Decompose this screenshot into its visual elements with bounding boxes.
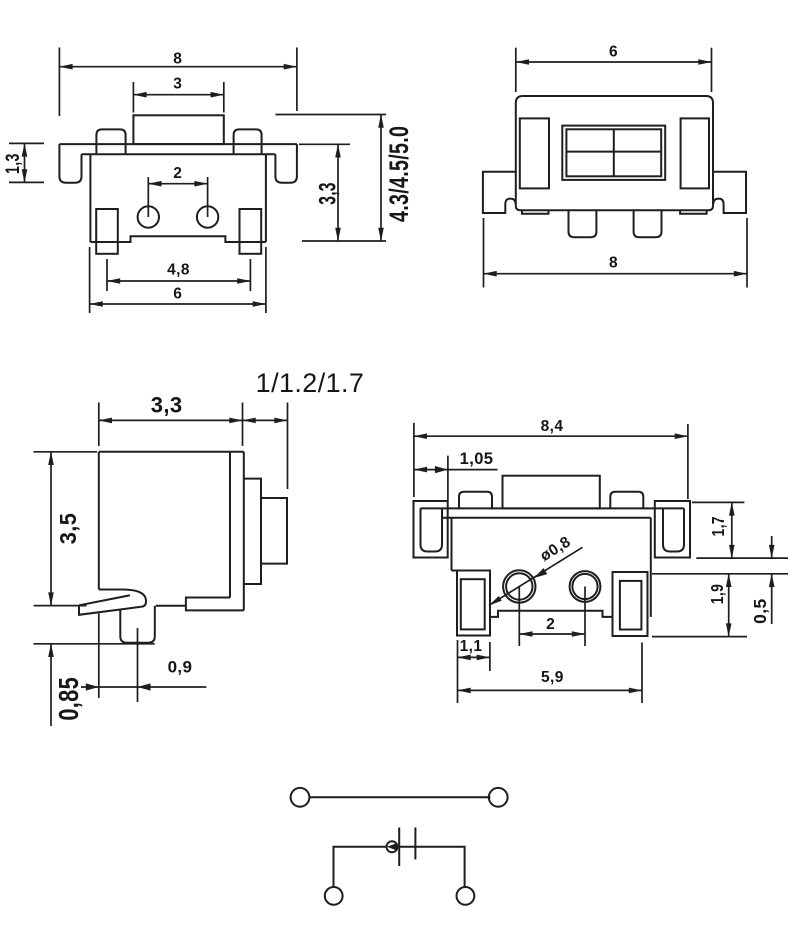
svg-text:2: 2 <box>546 616 555 633</box>
svg-text:4,8: 4,8 <box>167 262 190 279</box>
svg-text:2: 2 <box>173 165 182 182</box>
svg-text:1/1.2/1.7: 1/1.2/1.7 <box>256 368 365 398</box>
svg-text:0,85: 0,85 <box>54 677 85 721</box>
svg-text:3,3: 3,3 <box>315 182 341 204</box>
svg-text:1,3: 1,3 <box>2 153 23 174</box>
svg-text:0,9: 0,9 <box>168 657 193 676</box>
svg-text:4.3/4.5/5.0: 4.3/4.5/5.0 <box>385 126 415 222</box>
svg-text:8: 8 <box>609 255 618 272</box>
svg-text:3: 3 <box>173 76 182 93</box>
svg-text:ø0,8: ø0,8 <box>537 533 574 565</box>
svg-text:8,4: 8,4 <box>541 418 564 435</box>
svg-text:0,5: 0,5 <box>750 598 770 624</box>
svg-text:1,7: 1,7 <box>710 516 729 536</box>
svg-text:1,9: 1,9 <box>709 584 728 604</box>
svg-text:1,05: 1,05 <box>460 450 494 468</box>
svg-text:3,3: 3,3 <box>151 392 183 417</box>
svg-text:3,5: 3,5 <box>55 513 81 545</box>
svg-text:6: 6 <box>609 44 618 61</box>
svg-text:1,1: 1,1 <box>460 638 483 655</box>
svg-text:5,9: 5,9 <box>541 669 564 686</box>
svg-text:6: 6 <box>173 286 182 303</box>
svg-text:8: 8 <box>173 51 182 68</box>
